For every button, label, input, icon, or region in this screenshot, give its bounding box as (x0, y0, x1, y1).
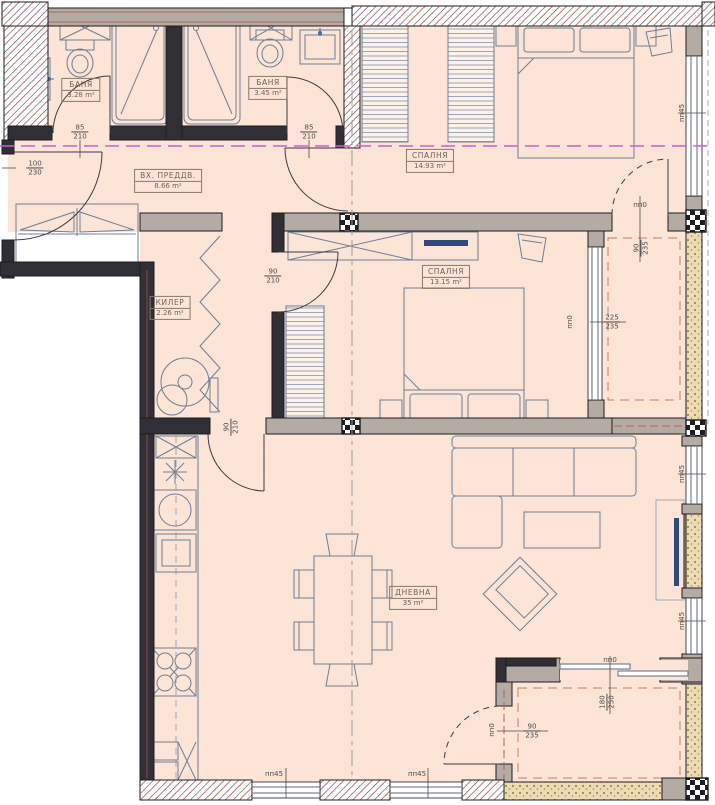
opening-label-pp0-terrace-slide: пп0 (603, 656, 617, 664)
dim-door-bedroom2: 90210 (264, 267, 281, 284)
wardrobe-1 (362, 26, 408, 142)
window-bottom-2 (390, 782, 462, 798)
room-label-living: ДНЕВНА 35 m² (389, 586, 437, 610)
window-living-right-2 (686, 598, 702, 654)
room-label-closet: КИЛЕР 2.26 m² (150, 296, 191, 320)
dim-door-corridor: 90210 (222, 418, 239, 435)
floorplan-canvas (0, 0, 715, 805)
window-bedroom2-balcony (588, 247, 602, 400)
opening-label-pp0-terrace-side: пп0 (488, 723, 496, 737)
opening-label-pp0-bedroom1: пп0 (633, 201, 647, 209)
opening-label-pp45-living2: пп45 (678, 612, 686, 630)
dim-window-bedroom2: 225235 (603, 313, 620, 330)
sliding-door-terrace (560, 660, 688, 680)
wardrobe-3 (286, 306, 324, 424)
room-label-bedroom2: СПАЛНЯ 13.15 m² (422, 265, 470, 289)
window-living-right-1 (686, 446, 702, 504)
opening-label-pp0-bedroom2: пп0 (566, 315, 574, 329)
window-bedroom1-right (686, 56, 702, 196)
dim-door-bath1: 85210 (71, 123, 88, 140)
dim-door-terrace-side: 90235 (523, 722, 540, 739)
opening-label-pp45-living1: пп45 (678, 465, 686, 483)
dim-sliding-door-terrace: 180250 (598, 693, 615, 710)
room-label-entry: ВХ. ПРЕДДВ. 8.66 m² (134, 169, 202, 193)
room-label-bath2: БАНЯ 3.45 m² (248, 76, 287, 100)
opening-label-pp45-bedroom1: пп45 (678, 104, 686, 122)
opening-label-pp45-bottom1: пп45 (265, 770, 283, 778)
dim-entrance-door: 100230 (26, 159, 43, 176)
room-label-bath1: БАНЯ 3.28 m² (61, 78, 100, 102)
dim-door-bath2: 85210 (300, 123, 317, 140)
floorplan-page: БАНЯ 3.28 m² БАНЯ 3.45 m² ВХ. ПРЕДДВ. 8.… (0, 0, 715, 805)
opening-label-pp45-bottom2: пп45 (408, 770, 426, 778)
vent-symbol (163, 460, 187, 484)
room-label-bedroom1: СПАЛНЯ 14.93 m² (406, 149, 454, 173)
wardrobe-2 (448, 26, 494, 142)
dim-door-bedroom1-balcony: 90235 (632, 239, 649, 256)
